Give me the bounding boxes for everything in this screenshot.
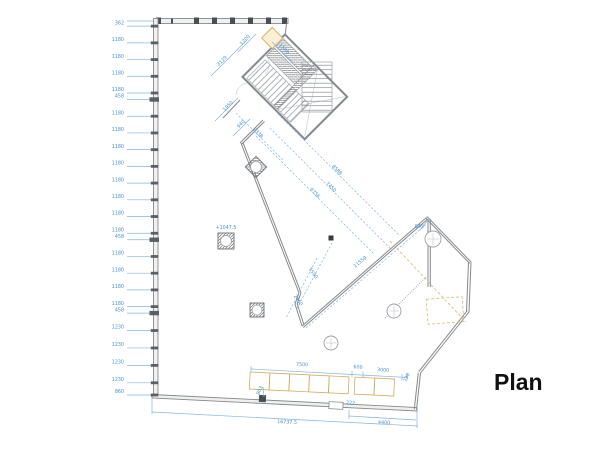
- left-chain-dim: 458: [115, 234, 124, 240]
- wall-mullion-tick: [151, 232, 159, 235]
- left-chain-dim: 1180: [112, 301, 124, 307]
- notch-walls: [223, 100, 428, 328]
- wall-mullion-tick: [151, 347, 159, 350]
- wall-mullion-tick: [151, 182, 159, 185]
- wall-mullion-tick: [151, 115, 159, 118]
- left-chain-dim: 1230: [112, 360, 124, 366]
- left-chain-dim: 1230: [112, 377, 124, 383]
- left-chain-dim: 362: [115, 20, 124, 26]
- wall-mullion-tick: [151, 381, 159, 384]
- left-chain-dim: 458: [115, 94, 124, 100]
- wall-mullion-tick: [150, 311, 160, 315]
- wall-mullion-tick: [150, 238, 160, 242]
- floor-plan-drawing: 3621180118011801180458118011801180118011…: [0, 0, 600, 450]
- wall-mullion-tick: [151, 305, 159, 308]
- wall-mullion-tick: [151, 165, 159, 168]
- left-chain-dim: 458: [115, 307, 124, 313]
- right-wing-walls: [414, 217, 471, 410]
- left-chain-dim: 1180: [112, 87, 124, 93]
- left-chain-dim: 1180: [112, 251, 124, 257]
- left-chain-dim: 1230: [112, 325, 124, 331]
- wall-mullion-tick: [151, 329, 159, 332]
- dim-label: 7450: [324, 181, 337, 194]
- wall-mullion-tick: [151, 75, 159, 78]
- dim-label: 945: [415, 224, 424, 230]
- wall-mullion-tick: [150, 97, 160, 101]
- wall-mullion-tick: [151, 288, 159, 291]
- wall-mullion-tick: [151, 272, 159, 275]
- left-chain-dim: 1180: [112, 70, 124, 76]
- wall-mullion-tick: [151, 394, 159, 397]
- dim-label: 8588: [330, 164, 343, 177]
- dim-label: 2460: [292, 294, 304, 307]
- floor-plan-page: 3621180118011801180458118011801180118011…: [0, 0, 600, 450]
- dim-label: 940: [236, 119, 247, 130]
- column-square: [245, 156, 266, 177]
- dim-label: 803: [255, 385, 264, 396]
- wall-mullion-tick: [151, 25, 159, 28]
- dim-label: 738: [402, 372, 411, 383]
- dim-label: 1950: [222, 100, 235, 113]
- wall-mullion-tick: [151, 255, 159, 258]
- dim-label: 3129: [216, 55, 229, 68]
- wall-mullion-tick: [151, 58, 159, 61]
- dim-label: 6756: [308, 187, 321, 200]
- left-chain-dim: 1180: [112, 194, 124, 200]
- left-chain-dim: 1230: [112, 342, 124, 348]
- stair-core: [233, 25, 348, 140]
- page-title: Plan: [494, 369, 543, 395]
- wall-mullion-tick: [151, 132, 159, 135]
- door-swing-arc: [236, 83, 247, 95]
- left-chain-dim: 1180: [112, 284, 124, 290]
- left-chain-dim: 1180: [112, 161, 124, 167]
- left-chain-dim: 1180: [112, 267, 124, 273]
- wall-mullion-tick: [151, 92, 159, 95]
- dim-label: 16737.5: [277, 419, 297, 426]
- bottom-wall: [152, 395, 417, 412]
- dim-label: 7500: [296, 362, 309, 369]
- column-square: [250, 303, 264, 317]
- dim-label: 600: [353, 364, 362, 370]
- left-chain-dim: 1180: [112, 211, 124, 217]
- wall-mullion-tick: [151, 215, 159, 218]
- wall-mullion-tick: [151, 364, 159, 367]
- section-marker: [329, 236, 334, 241]
- left-chain-dim: 1180: [112, 54, 124, 60]
- left-chain-dim: 860: [115, 389, 124, 395]
- dim-label: 222: [346, 400, 355, 406]
- column-square: [218, 233, 234, 249]
- stair-flight-treads: [302, 62, 332, 112]
- left-chain-dim: 1180: [112, 110, 124, 116]
- left-chain-dim: 1180: [112, 37, 124, 43]
- level-label: +1047.5: [216, 225, 237, 231]
- left-chain-dim: 1180: [112, 127, 124, 133]
- dim-label: 11559: [353, 255, 369, 269]
- left-chain-dim: 1180: [112, 177, 124, 183]
- left-dimension-chain: 3621180118011801180458118011801180118011…: [112, 20, 159, 396]
- dim-label: 3000: [377, 367, 390, 374]
- dim-label: 4400: [378, 420, 391, 427]
- left-chain-dim: 1180: [112, 227, 124, 233]
- left-chain-dim: 1180: [112, 144, 124, 150]
- wall-mullion-tick: [151, 148, 159, 151]
- wall-mullion-tick: [151, 41, 159, 44]
- wall-mullion-tick: [151, 198, 159, 201]
